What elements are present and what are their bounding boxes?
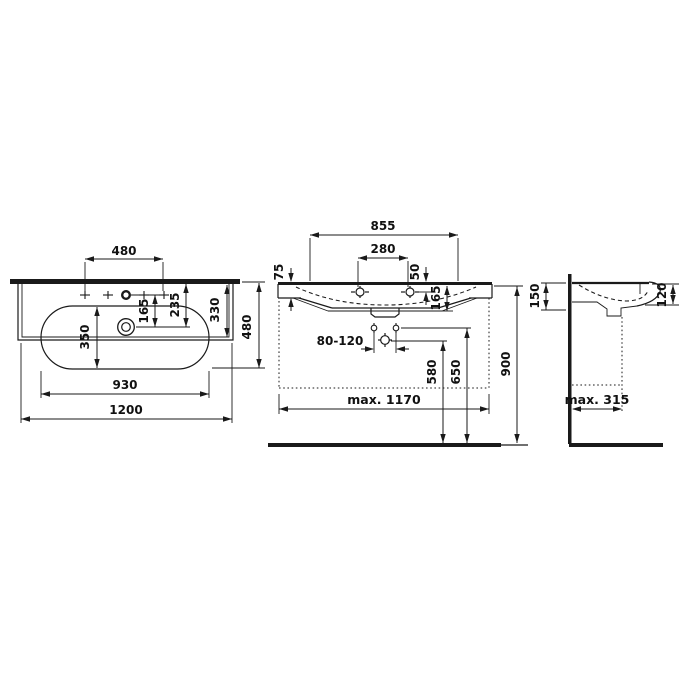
dim-label: 1200 — [109, 403, 142, 417]
floor-line — [268, 443, 501, 447]
dim-label: 330 — [208, 297, 222, 322]
dim-max-width: max. 1170 — [279, 392, 489, 414]
dim-label: 350 — [78, 324, 92, 349]
dim-label: 480 — [240, 314, 254, 339]
dim-fixing-hole-range: 80-120 — [317, 332, 409, 353]
dim-plan-rear-to-drain: 235 — [168, 284, 189, 327]
dim-label: 855 — [370, 219, 395, 233]
plan-back-edge — [10, 279, 240, 284]
dim-label: 50 — [408, 264, 422, 281]
dim-front-tap-spacing: 280 — [358, 242, 408, 287]
front-drain-boss — [371, 308, 399, 317]
dim-plan-bowl-width: 350 — [78, 307, 100, 368]
dim-label: 580 — [425, 359, 439, 384]
dim-label: 480 — [111, 244, 136, 258]
dim-label: 120 — [655, 282, 669, 307]
front-tap-holes — [351, 286, 419, 298]
dim-label: 930 — [112, 378, 137, 392]
fixing-bolt-holes — [371, 323, 399, 333]
dim-label: max. 1170 — [347, 392, 421, 407]
dim-rim-height: 900 — [494, 286, 523, 443]
top-view: 480 165 235 350 33 — [10, 244, 265, 423]
side-view: 150 120 max. 315 — [528, 274, 679, 447]
plan-bowl-outline — [41, 306, 209, 369]
dim-label: 165 — [429, 285, 443, 310]
side-basin-profile — [572, 282, 660, 316]
dim-side-front-height: 120 — [645, 282, 679, 307]
dim-side-rear-height: 150 — [528, 283, 566, 310]
washbasin-dimension-drawing: 480 165 235 350 33 — [0, 0, 700, 700]
technical-drawing-page: 480 165 235 350 33 — [0, 0, 700, 700]
dim-label: 650 — [449, 359, 463, 384]
dim-side-max-depth: max. 315 — [565, 392, 630, 412]
dim-label: 235 — [168, 292, 182, 317]
dim-label: 280 — [370, 242, 395, 256]
front-drain-symbol — [378, 333, 392, 347]
front-rim-edge — [278, 282, 492, 285]
dim-label: 75 — [272, 264, 286, 281]
front-basin-outline — [278, 284, 492, 317]
front-view: 855 280 75 50 — [268, 219, 528, 447]
tap-hole — [122, 291, 130, 299]
dim-front-rim-thickness: 75 — [272, 264, 294, 311]
dim-plan-overall-depth: 480 — [212, 282, 265, 368]
dim-label: 165 — [137, 298, 151, 323]
dim-front-basin-depth: 165 — [429, 285, 453, 311]
dim-plan-bowl-length: 930 — [41, 371, 209, 398]
dim-label: 150 — [528, 283, 542, 308]
dim-plan-deck-depth: 330 — [208, 285, 230, 337]
plan-drain — [118, 319, 135, 336]
side-bowl-dashed — [579, 285, 648, 301]
wall-line — [568, 274, 572, 444]
dim-label: max. 315 — [565, 392, 630, 407]
dim-label: 80-120 — [317, 334, 364, 348]
dim-label: 900 — [499, 351, 513, 376]
side-floor-line — [569, 443, 663, 447]
